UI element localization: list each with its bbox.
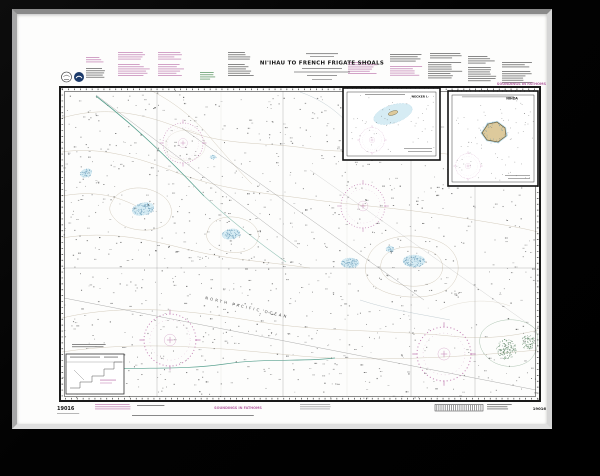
commerce-seal-icon <box>62 72 72 82</box>
inset-chart-necker <box>343 88 440 160</box>
noaa-emblems <box>62 72 85 82</box>
inset-title-nihoa: NIHOA <box>506 97 518 101</box>
title-subline <box>312 79 332 80</box>
title-overline <box>306 53 338 54</box>
framed-nautical-chart: NI'IHAU TO FRENCH FRIGATE SHOALS SOUNDIN… <box>0 0 600 476</box>
chart-number-bottom-left: 19016 <box>57 406 75 412</box>
title-subline <box>294 72 350 73</box>
inset-title-necker: NECKER I. <box>412 95 429 99</box>
title-subline <box>302 68 342 69</box>
inset-scale-bar <box>365 94 405 95</box>
nautical-chart-print: NI'IHAU TO FRENCH FRIGATE SHOALS SOUNDIN… <box>0 0 600 476</box>
noaa-logo-icon <box>74 72 84 82</box>
title-subline <box>307 75 337 76</box>
chart-number-bottom-right: 19016 <box>533 406 547 411</box>
index-diagram-box <box>66 354 124 394</box>
title-overline <box>310 56 334 57</box>
inset-chart-nihoa <box>448 91 538 186</box>
shoal-patches <box>79 155 425 268</box>
soundings-note-bottom: SOUNDINGS IN FATHOMS <box>214 406 262 410</box>
footer-scale-bar <box>435 405 483 412</box>
soundings-note-top: SOUNDINGS IN FATHOMS <box>497 82 547 86</box>
teal-contour-lines <box>70 96 335 374</box>
chart-title: NI'IHAU TO FRENCH FRIGATE SHOALS <box>260 61 384 67</box>
